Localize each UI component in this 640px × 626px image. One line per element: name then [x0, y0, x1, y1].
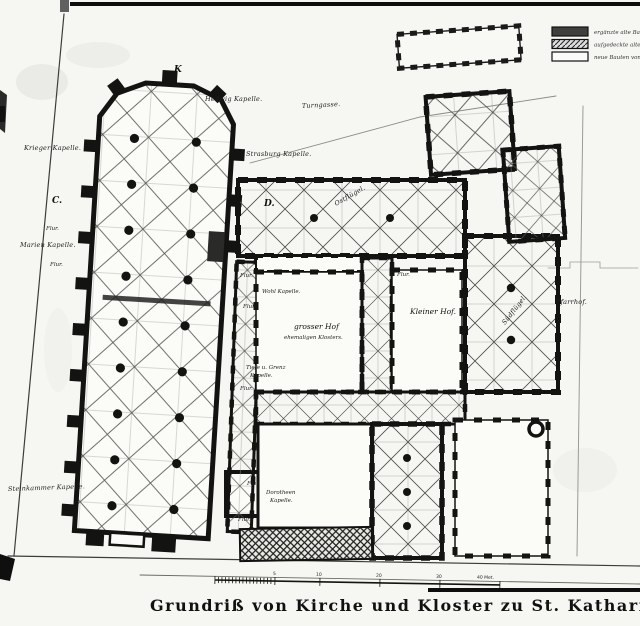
scale-tick-label: 5 [273, 571, 276, 577]
pfarrhof-label: Pfarrhof. [555, 298, 587, 306]
round-column [529, 422, 543, 436]
steinkammer-chapel-label: Steinkammer Kapelle. [8, 482, 85, 493]
dorotheen-chapel-label2: Kapelle. [269, 498, 293, 504]
grosser-hof-label: grosser Hof [294, 322, 340, 331]
street-name-label: Turngasse. [302, 100, 341, 110]
krieger-chapel-label: Krieger Kapelle. [23, 144, 81, 152]
flur-label: Flur. [237, 517, 251, 523]
flur-label: Flur. [396, 272, 410, 278]
hedwig-chapel-label: Hedwig Kapelle. [204, 95, 262, 103]
scale-bar: 5 10 20 30 40 Met. [215, 570, 500, 589]
caption-bar: Grundriß von Kirche und Kloster zu St. K… [150, 596, 640, 615]
page-title: Grundriß von Kirche und Kloster zu St. K… [150, 596, 640, 615]
kleiner-hof-courtyard [392, 270, 462, 392]
organ-block [207, 231, 225, 262]
wohl-chapel-label: Wohl Kapelle. [262, 289, 301, 295]
legend-label: ergänzte alte Bauten. [594, 30, 640, 36]
southwest-room [258, 424, 372, 528]
flur-label: Flur. [49, 262, 63, 268]
rule-above-title [428, 588, 640, 592]
tiefe-grenz-chapel-label: Tiefe u. Grenz [246, 365, 286, 371]
northeast-room [426, 91, 515, 175]
flur-label: Flur. [246, 481, 260, 487]
legend-label: aufgedeckte alte Mauern. [594, 43, 640, 49]
scanned-floor-plan-page: ergänzte alte Bauten. aufgedeckte alte M… [0, 0, 640, 626]
legend-swatch-solid [552, 27, 588, 36]
marker-c: C. [52, 196, 62, 206]
scale-end-label: 40 Met. [477, 575, 494, 581]
grosser-hof-sublabel: ehemaligen Klosters. [284, 335, 343, 341]
flur-label: Flur. [239, 273, 253, 279]
marker-d: D. [263, 199, 275, 209]
scale-tick-label: 20 [376, 573, 382, 579]
detached-building-outline [397, 26, 521, 68]
scale-tick-label: 10 [316, 572, 322, 578]
church-plan [59, 66, 249, 556]
legend-label: neue Bauten von 1888. [594, 55, 640, 61]
new-building-hatched-block [240, 527, 373, 561]
dorotheen-chapel-label: Dorotheen [265, 490, 296, 496]
legend-swatch-outline [552, 52, 588, 61]
flur-label: Flur. [242, 304, 256, 310]
flur-label: Flur. [45, 226, 59, 232]
southeast-room [455, 420, 548, 556]
south-wing [372, 424, 442, 558]
floor-plan-drawing: ergänzte alte Bauten. aufgedeckte alte M… [0, 0, 640, 626]
northeast-corridor [503, 146, 565, 242]
top-edge-line [70, 2, 640, 6]
legend: ergänzte alte Bauten. aufgedeckte alte M… [552, 27, 640, 61]
middle-range [362, 258, 392, 392]
legend-swatch-hatched [552, 40, 588, 49]
kleiner-hof-label: Kleiner Hof. [409, 307, 456, 316]
flur-label: Flur. [239, 386, 253, 392]
scale-tick-label: 30 [436, 574, 442, 580]
strasburg-chapel-label: Strasburg Kapelle. [246, 150, 311, 158]
west-porch [110, 533, 145, 547]
south-cloister-walk [256, 392, 465, 424]
marien-chapel-label: Marien Kapelle. [19, 241, 76, 249]
tiefe-grenz-chapel-label2: Kapelle. [249, 373, 273, 379]
marker-k: K [173, 65, 183, 75]
